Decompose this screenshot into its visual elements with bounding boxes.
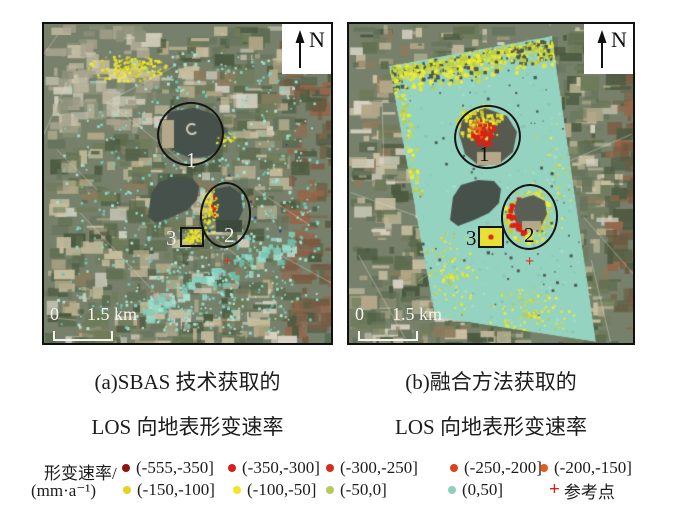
region-label-3: 3 bbox=[166, 228, 177, 248]
north-arrow-icon bbox=[292, 30, 308, 70]
region-square-3-a bbox=[180, 227, 204, 247]
legend-range-label: (-350,-300] bbox=[242, 458, 320, 478]
legend-range-label: 参考点 bbox=[564, 478, 615, 503]
legend-dot-icon bbox=[326, 486, 334, 494]
legend-range-label: (0,50] bbox=[462, 480, 503, 500]
legend-range-label: (-150,-100] bbox=[137, 480, 215, 500]
legend-range-label: (-250,-200] bbox=[464, 458, 542, 478]
legend-dot-icon bbox=[326, 464, 334, 472]
legend-dot-icon bbox=[233, 486, 241, 494]
legend-dot-icon bbox=[448, 486, 456, 494]
region-label-2: 2 bbox=[224, 225, 235, 245]
map-panel-fusion: 1 2 3 + N 0 1.5 km bbox=[347, 22, 635, 345]
legend-dot-icon bbox=[123, 486, 131, 494]
region-label-2: 2 bbox=[524, 225, 535, 245]
legend-entry: (-555,-350] bbox=[122, 458, 214, 478]
legend-entry: (0,50] bbox=[448, 480, 503, 500]
region-label-1: 1 bbox=[186, 150, 197, 170]
legend-entry: (-100,-50] bbox=[233, 480, 316, 500]
legend-title-line2: (mm·a⁻¹) bbox=[31, 481, 96, 501]
scale-distance-label: 1.5 km bbox=[392, 304, 442, 325]
region-square-3-b bbox=[478, 226, 504, 248]
north-indicator-box: N bbox=[282, 24, 331, 74]
north-label: N bbox=[309, 27, 325, 53]
north-indicator-box: N bbox=[584, 24, 633, 74]
north-arrow-icon bbox=[594, 30, 610, 70]
legend-dot-icon bbox=[228, 464, 236, 472]
caption-panel-a: (a)SBAS 技术获取的 LOS 向地表形变速率 bbox=[42, 366, 333, 456]
legend-dot-icon bbox=[540, 464, 548, 472]
legend-entry: (-150,-100] bbox=[123, 480, 215, 500]
legend-range-label: (-100,-50] bbox=[247, 480, 316, 500]
figure-page: 1 2 3 + N 0 1.5 km 1 2 3 + bbox=[0, 0, 693, 505]
caption-a-line1: (a)SBAS 技术获取的 bbox=[42, 366, 333, 396]
legend-entry: (-200,-150] bbox=[540, 458, 632, 478]
reference-point-marker: + bbox=[223, 255, 232, 269]
map-panel-sbas: 1 2 3 + N 0 1.5 km bbox=[42, 22, 333, 345]
legend-range-label: (-50,0] bbox=[340, 480, 387, 500]
legend-entry: (-300,-250] bbox=[326, 458, 418, 478]
legend-entry: +参考点 bbox=[549, 480, 615, 500]
scale-rule bbox=[358, 331, 418, 341]
legend-range-label: (-300,-250] bbox=[340, 458, 418, 478]
caption-b-line2: LOS 向地表形变速率 bbox=[347, 411, 635, 441]
legend-dot-icon bbox=[122, 464, 130, 472]
legend-dot-icon bbox=[450, 464, 458, 472]
scale-distance-label: 1.5 km bbox=[87, 304, 137, 325]
legend-entry: (-250,-200] bbox=[450, 458, 542, 478]
north-label: N bbox=[611, 27, 627, 53]
legend: 形变速率/ (mm·a⁻¹) (-555,-350](-350,-300](-3… bbox=[0, 452, 693, 505]
scale-zero-label: 0 bbox=[50, 304, 59, 325]
reference-point-cross-icon: + bbox=[549, 481, 560, 499]
reference-point-marker: + bbox=[525, 255, 534, 269]
legend-entry: (-350,-300] bbox=[228, 458, 320, 478]
caption-panel-b: (b)融合方法获取的 LOS 向地表形变速率 bbox=[347, 366, 635, 456]
caption-a-line2: LOS 向地表形变速率 bbox=[42, 411, 333, 441]
legend-range-label: (-555,-350] bbox=[136, 458, 214, 478]
legend-entry: (-50,0] bbox=[326, 480, 387, 500]
caption-b-line1: (b)融合方法获取的 bbox=[347, 366, 635, 396]
scale-zero-label: 0 bbox=[355, 304, 364, 325]
legend-range-label: (-200,-150] bbox=[554, 458, 632, 478]
region-label-1: 1 bbox=[479, 144, 490, 164]
scale-rule bbox=[53, 331, 113, 341]
region-label-3: 3 bbox=[466, 228, 477, 248]
